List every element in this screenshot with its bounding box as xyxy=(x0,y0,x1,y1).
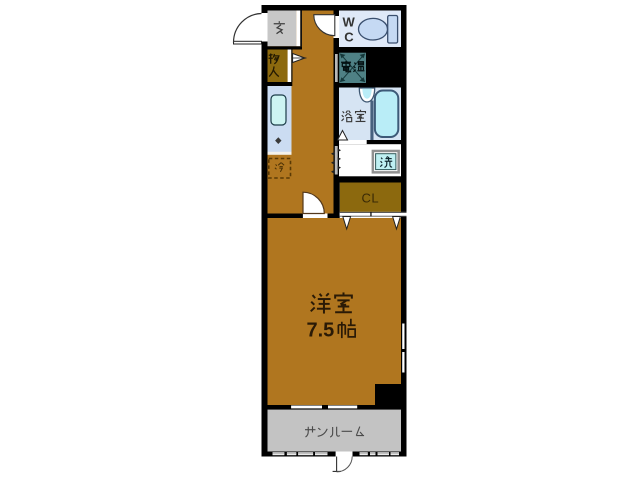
svg-text:CL: CL xyxy=(362,191,380,206)
svg-text:7.5: 7.5 xyxy=(307,320,335,342)
svg-text:W: W xyxy=(343,14,356,29)
svg-text:C: C xyxy=(344,29,354,44)
